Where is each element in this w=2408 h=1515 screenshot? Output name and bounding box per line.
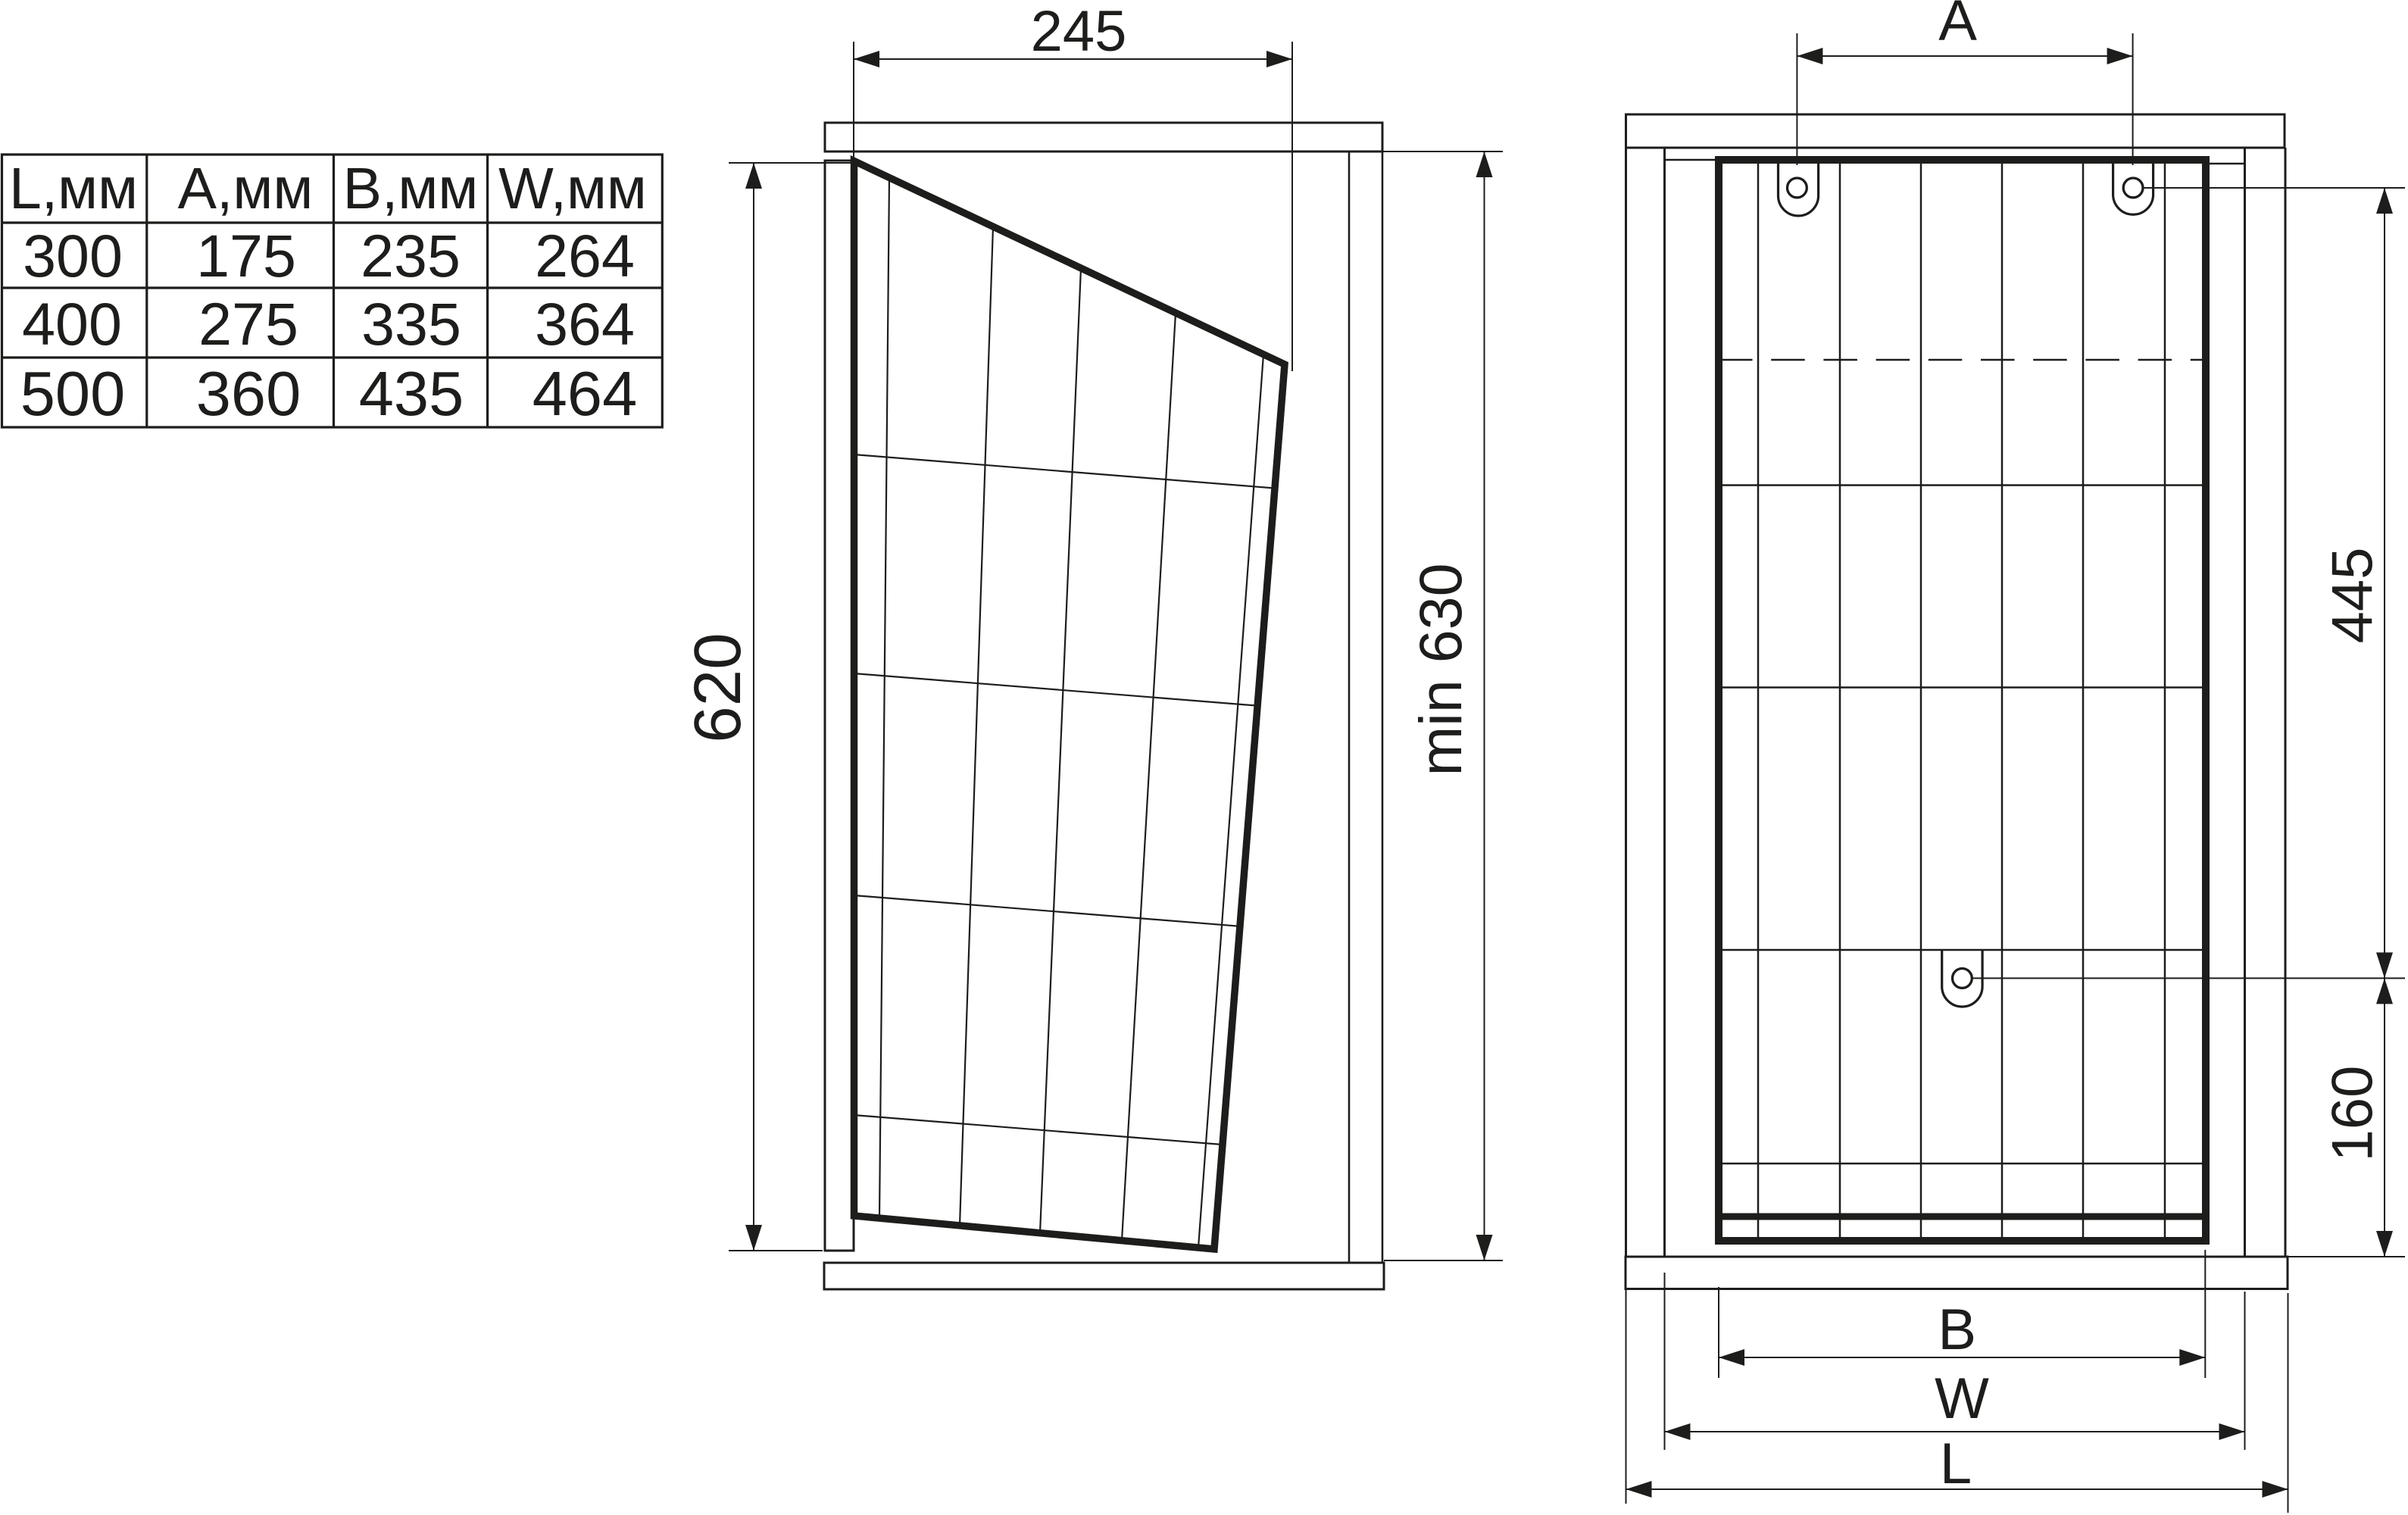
svg-text:435: 435 bbox=[359, 358, 464, 429]
svg-text:B,мм: B,мм bbox=[343, 156, 479, 221]
svg-text:464: 464 bbox=[533, 358, 637, 429]
svg-text:B: B bbox=[1938, 1298, 1976, 1362]
svg-text:175: 175 bbox=[196, 222, 296, 289]
svg-text:245: 245 bbox=[1031, 0, 1127, 64]
svg-text:L,мм: L,мм bbox=[9, 156, 138, 221]
svg-text:445: 445 bbox=[2320, 548, 2385, 644]
svg-text:A: A bbox=[1938, 0, 1977, 53]
svg-text:620: 620 bbox=[681, 633, 754, 742]
svg-text:360: 360 bbox=[196, 358, 301, 429]
svg-text:235: 235 bbox=[361, 222, 461, 289]
svg-text:275: 275 bbox=[198, 290, 298, 358]
svg-text:min 630: min 630 bbox=[1407, 563, 1474, 776]
svg-text:W,мм: W,мм bbox=[498, 156, 647, 221]
svg-text:A,мм: A,мм bbox=[178, 156, 314, 221]
svg-text:264: 264 bbox=[535, 222, 635, 289]
svg-text:160: 160 bbox=[2320, 1066, 2385, 1162]
svg-text:335: 335 bbox=[361, 290, 461, 358]
svg-text:400: 400 bbox=[22, 290, 122, 358]
svg-text:W: W bbox=[1935, 1367, 1989, 1431]
svg-text:364: 364 bbox=[535, 290, 635, 358]
svg-text:L: L bbox=[1940, 1432, 1972, 1496]
svg-text:500: 500 bbox=[20, 358, 125, 429]
svg-text:300: 300 bbox=[23, 222, 123, 289]
